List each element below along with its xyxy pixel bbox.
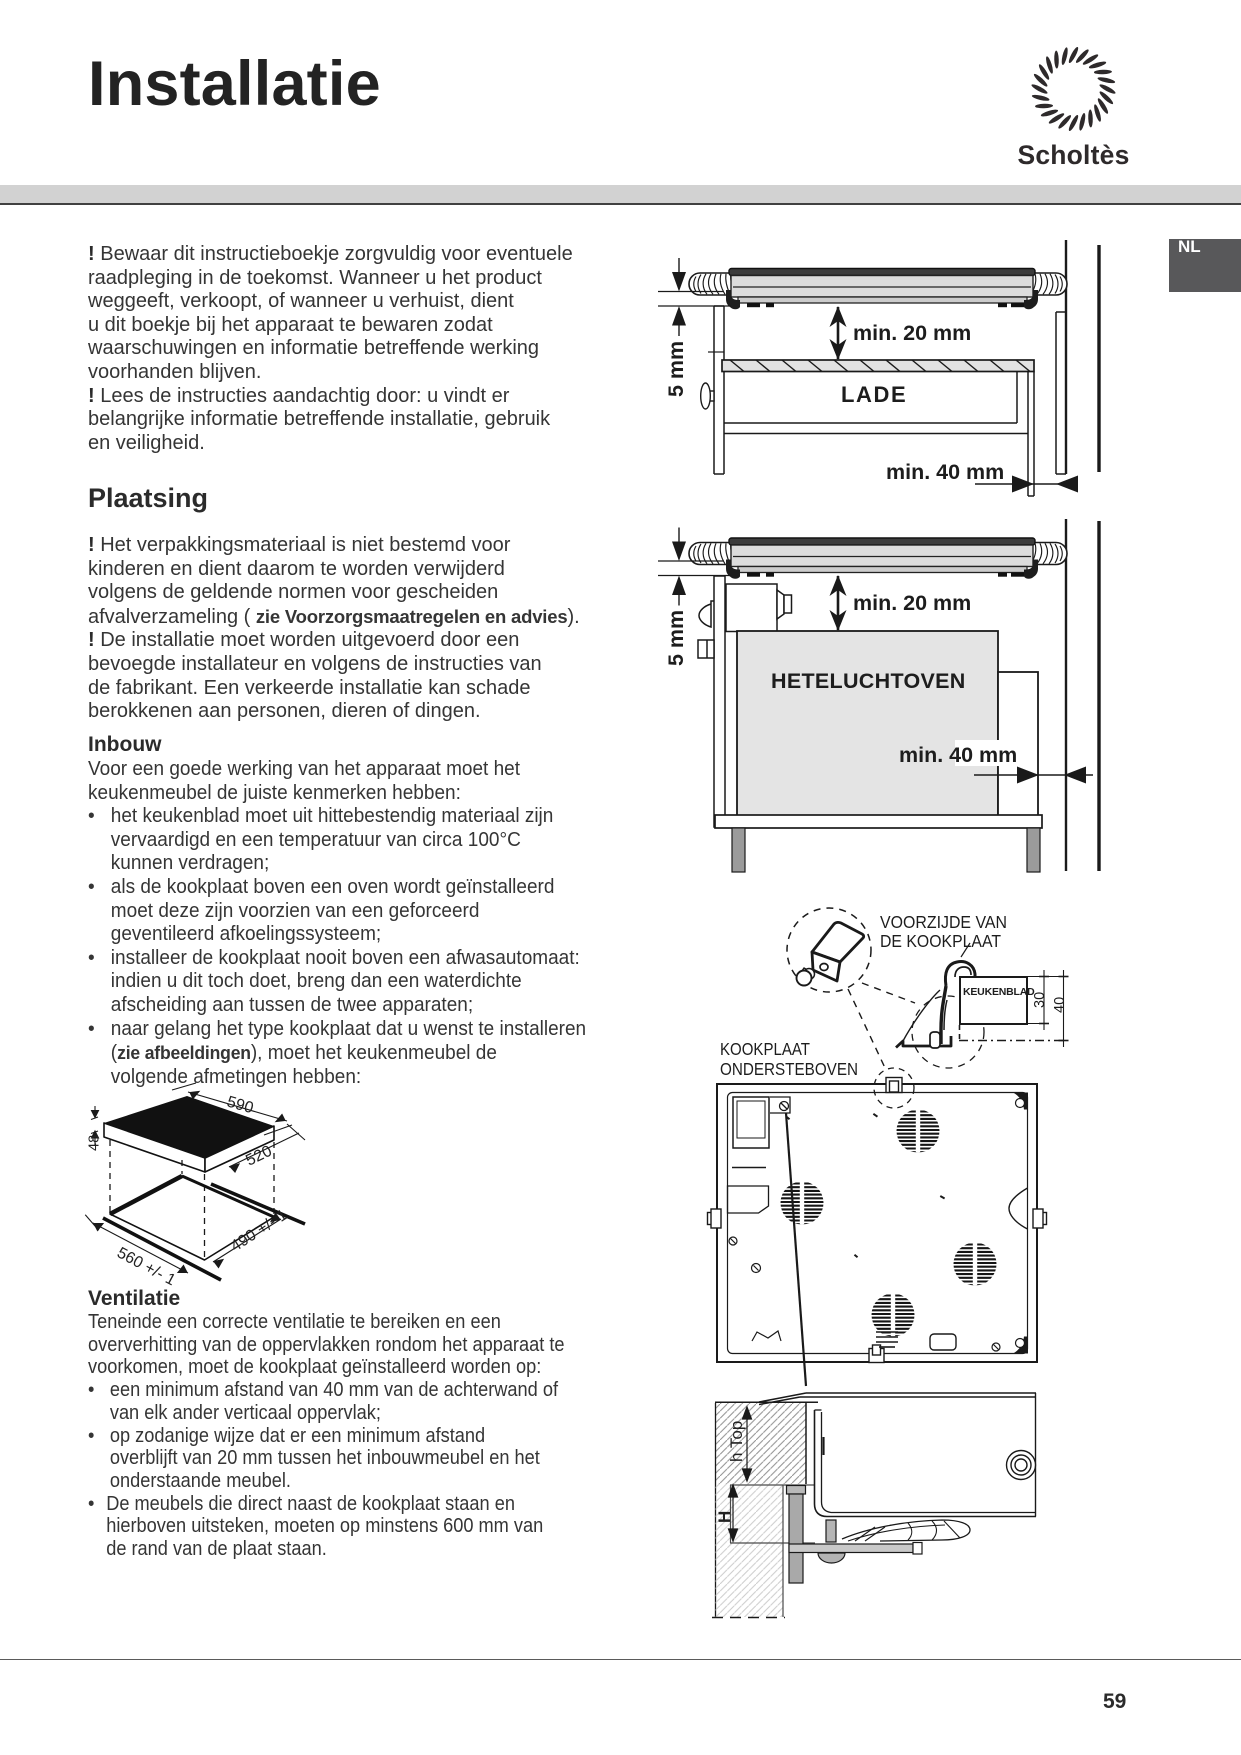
svg-text:5 mm: 5 mm: [664, 341, 688, 397]
svg-text:ONDERSTEBOVEN: ONDERSTEBOVEN: [720, 1059, 858, 1079]
svg-text:min. 20 mm: min. 20 mm: [853, 591, 971, 615]
svg-text:HETELUCHTOVEN: HETELUCHTOVEN: [771, 669, 966, 693]
svg-text:40: 40: [1052, 997, 1068, 1013]
svg-text:min. 40 mm: min. 40 mm: [899, 743, 1017, 767]
svg-text:KEUKENBLAD: KEUKENBLAD: [963, 986, 1035, 998]
svg-text:5 mm: 5 mm: [664, 610, 688, 666]
svg-text:490 +/- 1: 490 +/- 1: [228, 1206, 291, 1255]
svg-text:KOOKPLAAT: KOOKPLAAT: [720, 1039, 810, 1059]
svg-text:h Top: h Top: [727, 1421, 746, 1462]
svg-text:H: H: [715, 1511, 734, 1523]
svg-text:DE KOOKPLAAT: DE KOOKPLAAT: [880, 931, 1001, 951]
svg-text:LADE: LADE: [841, 382, 907, 407]
svg-text:30: 30: [1032, 992, 1048, 1008]
svg-text:48: 48: [87, 1135, 103, 1151]
svg-text:min. 20 mm: min. 20 mm: [853, 321, 971, 345]
svg-text:min. 40 mm: min. 40 mm: [886, 460, 1004, 484]
svg-text:VOORZIJDE VAN: VOORZIJDE VAN: [880, 912, 1007, 932]
